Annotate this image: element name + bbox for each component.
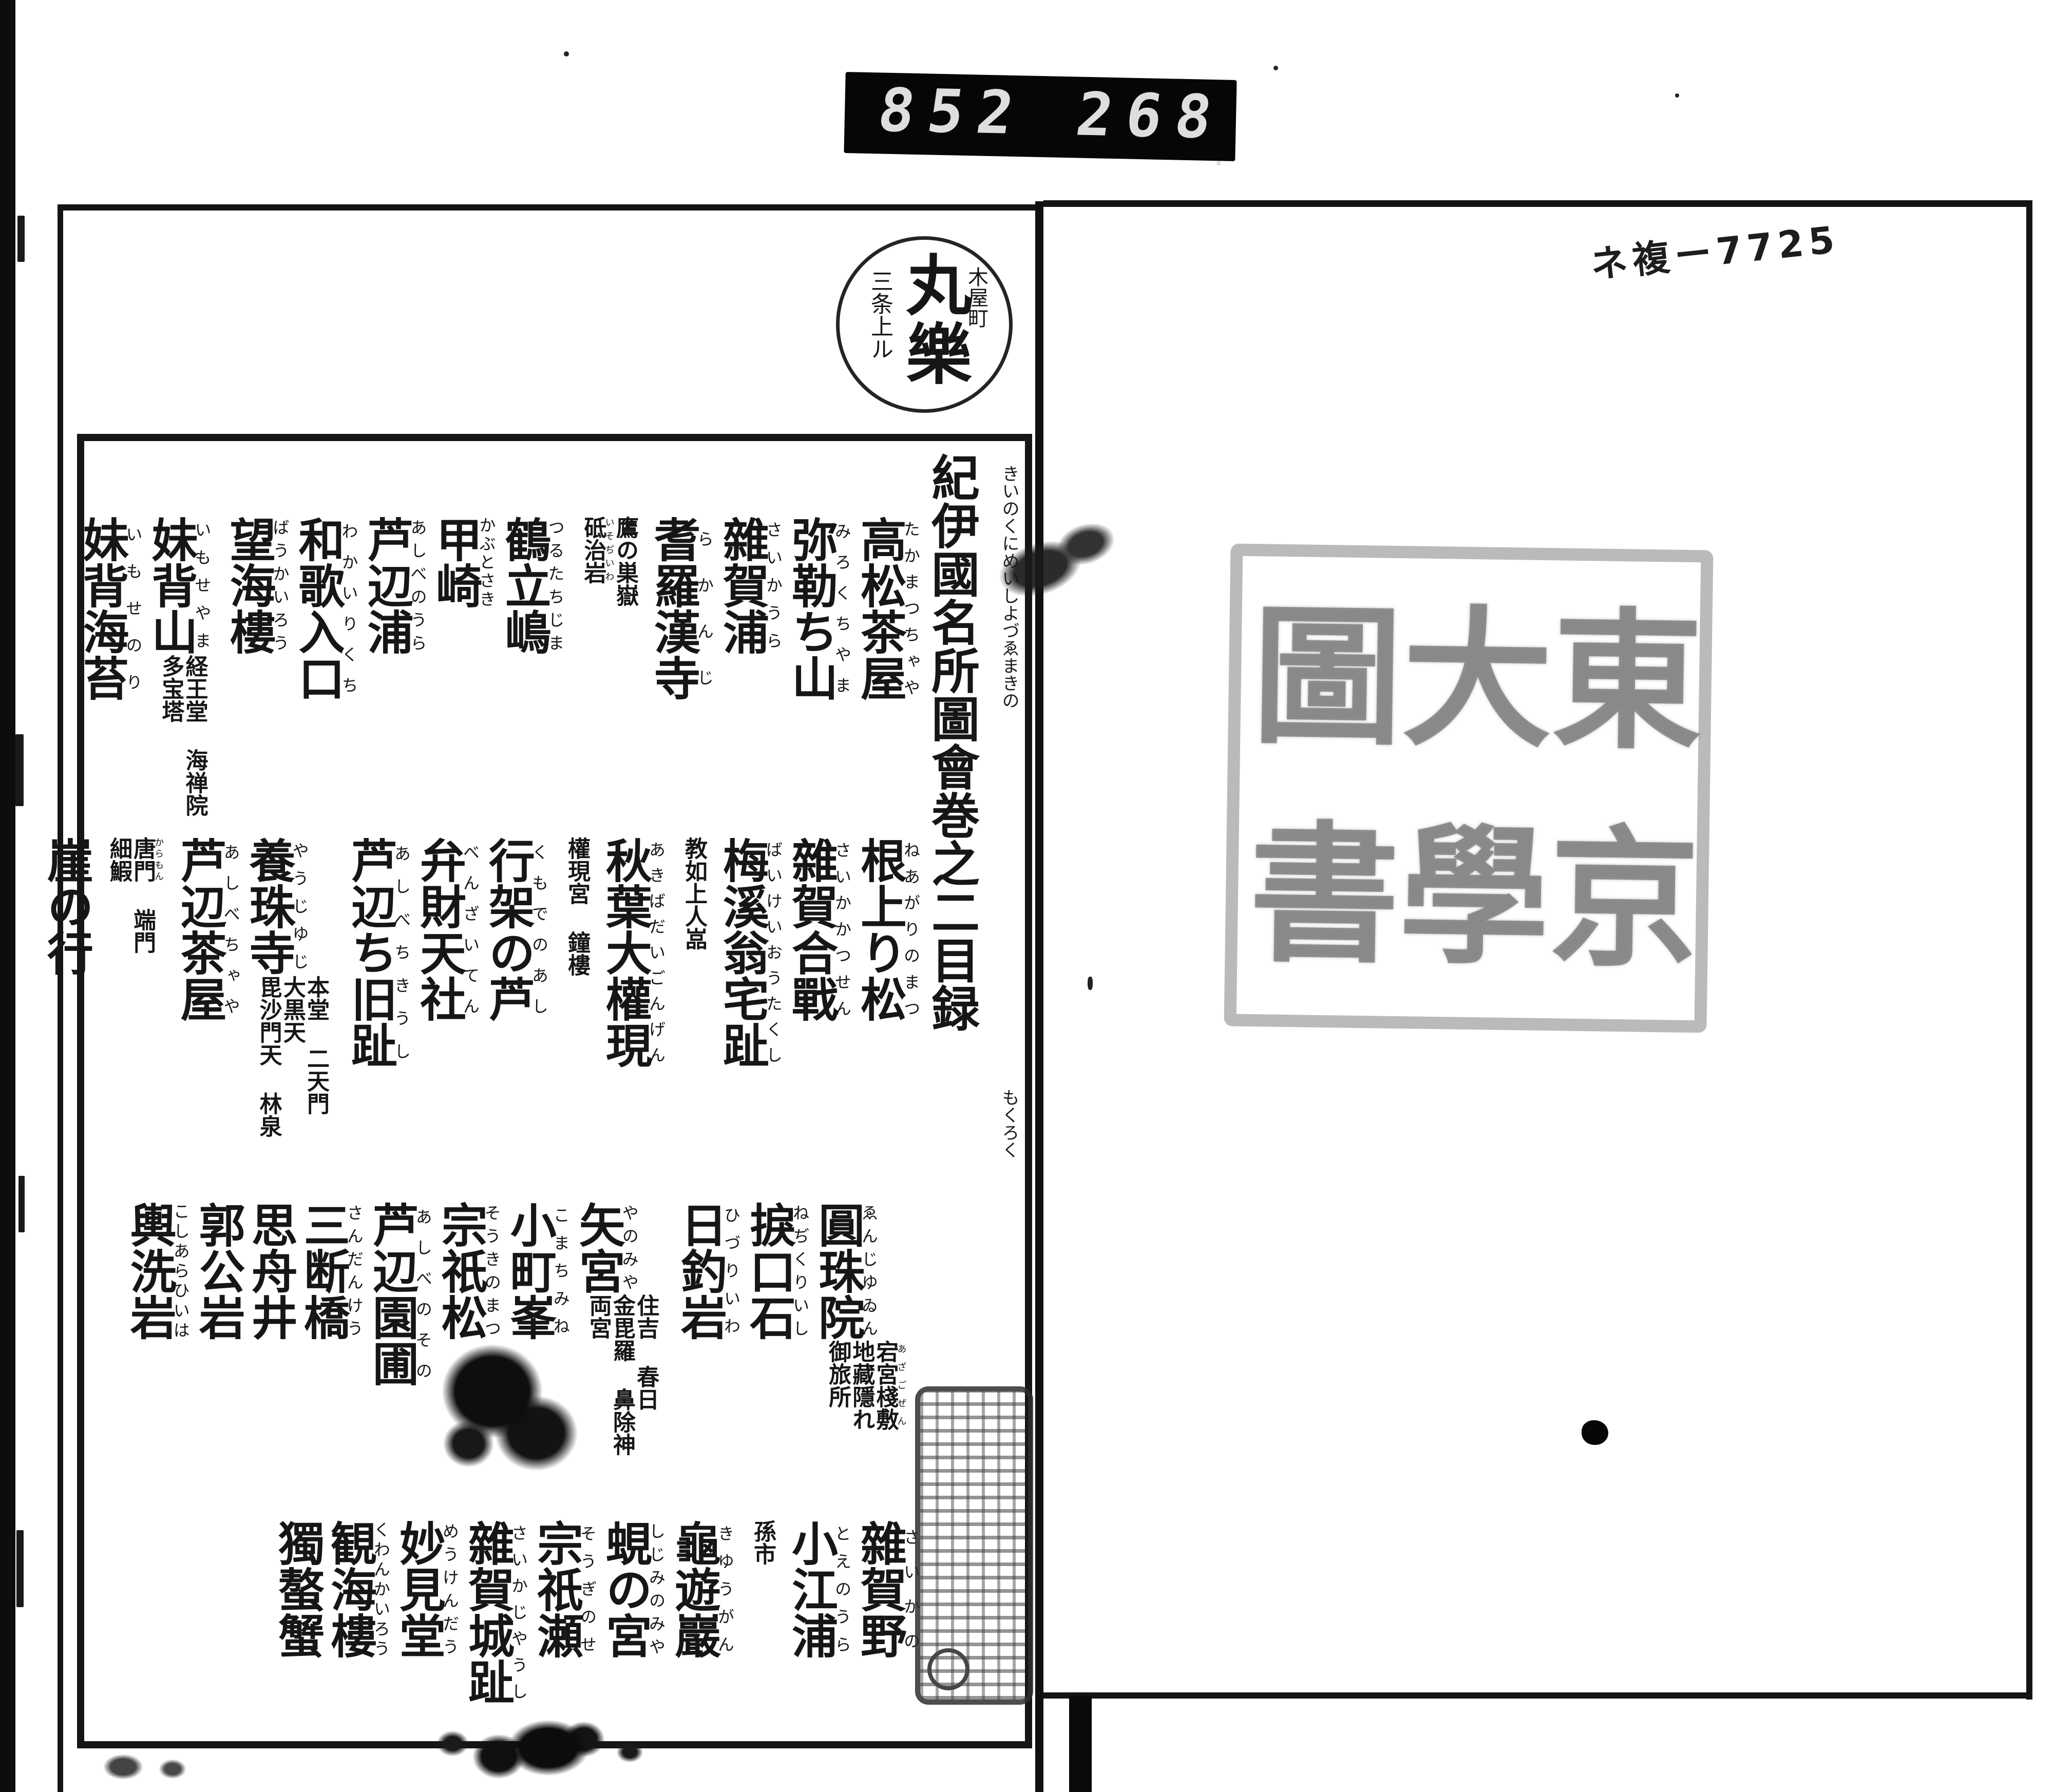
toc-entry-kana: たかまつちゃや xyxy=(901,516,921,701)
toc-sub-entry: 宕宮棧敷あざごぜん xyxy=(872,1340,899,1431)
toc-entry-kana: そうぎのせ xyxy=(578,1520,597,1658)
toc-entry-kana: さんだんけう xyxy=(345,1202,364,1340)
toc-entry-text: 捩口石ねぢくりいし xyxy=(741,1202,796,1340)
toc-entry: 行架の芦くもでのあし xyxy=(485,837,547,1155)
dust-speck xyxy=(564,51,569,56)
dust-speck xyxy=(1088,977,1093,990)
toc-entry: 捩口石ねぢくりいし xyxy=(746,1202,808,1510)
toc-entry-kana: べんざいてん xyxy=(461,837,480,1022)
ink-dot xyxy=(1582,1420,1608,1445)
dust-speck xyxy=(1273,66,1278,70)
ink-stain-bottom-left xyxy=(77,1745,231,1789)
toc-entry-text: 雜賀合戰さいかかつせん xyxy=(784,837,838,1022)
toc-entry-text: 小江浦とえのうら xyxy=(784,1520,838,1658)
toc-entry: 鶴立嶋つるたちじま xyxy=(501,516,564,824)
toc-entry: 雜賀野さいかの xyxy=(857,1520,919,1741)
toc-entry-text: 雜賀野さいかの xyxy=(852,1520,907,1658)
toc-entry: 日釣岩ひづりいわ xyxy=(677,1202,739,1510)
toc-sub-entry: 二天門 xyxy=(303,1047,329,1115)
toc-sub-entry: 住吉 xyxy=(633,1294,659,1339)
toc-entry-kana: しじみのみや xyxy=(646,1520,666,1658)
toc-entry-kana: あきばだいごんげん xyxy=(646,837,666,1068)
film-frame-counter: 852 268 . xyxy=(844,72,1237,161)
toc-entry-kana: いもせやま xyxy=(192,516,212,655)
toc-entry: 雜賀浦さいかうら xyxy=(719,516,782,824)
right-page-bottom-edge xyxy=(1043,1692,2032,1699)
edge-mark xyxy=(16,1530,24,1607)
toc-entry: 弥勒ち山みろくちやま xyxy=(788,516,850,824)
toc-entry-text: 梅溪翁宅趾ばいけいおうたくし xyxy=(715,837,769,1068)
toc-sub-entry: 春日 xyxy=(633,1365,659,1410)
toc-entry-kana: くわんかいろう xyxy=(371,1520,391,1658)
toc-entry: 望海樓ばうかいろう xyxy=(226,516,289,824)
seal-column: 圖書 xyxy=(1248,567,1404,1005)
call-number-note: ネ複ー7725 xyxy=(1588,209,1842,289)
toc-entry: 耆羅漢寺らかんじ鷹の巣嶽 砥治岩いそぢいわ xyxy=(570,516,713,824)
toc-entry-kana: こしあらひいは xyxy=(171,1202,191,1340)
toc-sub-entry: 本堂 xyxy=(303,976,329,1021)
toc-band-2: 根上り松ねあがりのまつ雜賀合戰さいかかつせん梅溪翁宅趾ばいけいおうたくし教如上人… xyxy=(87,837,919,1155)
toc-sub-entry: 教如上人嵓 xyxy=(681,837,707,950)
edge-mark xyxy=(17,216,25,262)
toc-entry-text: 圓珠院ゑんじゆゐん xyxy=(810,1202,865,1340)
toc-entry-text: 獨螯蟹 xyxy=(270,1520,325,1658)
toc-entry: 輿洗岩こしあらひいは xyxy=(126,1202,189,1510)
gutter-ink-bar xyxy=(1069,1695,1092,1792)
toc-entry-kana: ねぢくりいし xyxy=(790,1202,810,1340)
toc-entry-sub-list: 孫市 xyxy=(751,1520,774,1689)
toc-sub-entry: 経王堂 xyxy=(182,655,208,722)
toc-entry-kana: らかんじ xyxy=(695,516,714,701)
toc-title-kana-lower: もくろく xyxy=(1000,1089,1018,1158)
toc-entry-kana: かぶとさき xyxy=(477,516,497,608)
toc-entry-kana: あしべちゃや xyxy=(221,837,241,1022)
toc-entry-kana: やうじゆじ xyxy=(290,837,310,976)
toc-sub-entry: 毘沙門天 xyxy=(256,976,282,1066)
edge-mark xyxy=(15,734,24,806)
toc-sub-entry: 鼻除神 xyxy=(609,1388,635,1456)
toc-entry-text: 妙見堂めうけんだう xyxy=(391,1520,446,1658)
toc-entry: 甲崎かぶとさき xyxy=(432,516,495,824)
toc-entry-text: 輿洗岩こしあらひいは xyxy=(122,1202,177,1340)
toc-entry-text: 甲崎かぶとさき xyxy=(428,516,483,608)
toc-sub-entry: 海禅院 xyxy=(182,749,208,816)
toc-entry: 思舟井 xyxy=(248,1202,294,1510)
toc-sub-entry: 鐘樓 xyxy=(564,931,590,976)
toc-entry: 三断橋さんだんけう xyxy=(300,1202,363,1510)
toc-sub-entry: 細鰕 xyxy=(106,837,132,882)
toc-entry-text: 秋葉大權現あきばだいごんげん xyxy=(598,837,652,1068)
bookseller-stamp-address-left: 三条上ル xyxy=(868,270,891,360)
toc-entry: 妹背山いもせやま経王堂 海禅院 多宝塔 xyxy=(147,516,219,824)
toc-sub-entry: 多宝塔 xyxy=(158,655,184,722)
toc-entry-sub-list: 住吉 春日 金毘羅 鼻除神 両宮 xyxy=(586,1294,658,1463)
toc-entry: 圓珠院ゑんじゆゐん宕宮棧敷あざごぜん 地藏隱れ 御旅所 xyxy=(814,1202,919,1510)
toc-entry-text: 蜆の宮しじみのみや xyxy=(598,1520,652,1658)
toc-entry-text: 弁財天社べんざいてん xyxy=(412,837,466,1022)
toc-entry: 獨螯蟹 xyxy=(274,1520,320,1741)
bookseller-stamp-address-right: 木屋町 xyxy=(966,266,986,328)
toc-entry-text: 芦辺ち旧趾あしべちきうし xyxy=(343,837,397,1068)
ink-smudge-center xyxy=(421,1314,591,1489)
scan-edge-strip xyxy=(0,0,15,1792)
toc-sub-entry: 御旅所 xyxy=(825,1340,851,1408)
toc-entry: 和歌入口わかいりくち xyxy=(295,516,357,824)
right-page-right-edge xyxy=(2026,200,2032,1700)
toc-entry: 秋葉大權現あきばだいごんげん權現宮 鐘樓 xyxy=(554,837,664,1155)
toc-entry-text: 行架の芦くもでのあし xyxy=(481,837,535,1022)
toc-entry-sub-list: 本堂 二天門 大黒天 毘沙門天 林泉 xyxy=(256,976,328,1145)
toc-entry-sub-list: 教如上人嵓 xyxy=(682,837,706,1006)
toc-entry: 妹背海苔いもせのり xyxy=(79,516,141,824)
ink-stain-bottom xyxy=(329,1705,683,1791)
toc-entry-kana: わかいりくち xyxy=(339,516,359,701)
seal-character: 學 xyxy=(1398,821,1550,973)
bookseller-stamp-mark: 丸樂 xyxy=(900,251,966,389)
toc-entry: 高松茶屋たかまつちゃや xyxy=(857,516,919,824)
left-page-top-edge xyxy=(58,204,1043,211)
toc-entry-kana: ゑんじゆゐん xyxy=(859,1202,879,1340)
scanned-book-spread: 852 268 . 丸樂 木屋町 三条上ル 紀伊國名所圖會巻之二目録 きいのくに… xyxy=(0,0,2054,1792)
toc-entry-kana: つるたちじま xyxy=(546,516,565,655)
counter-digits-right: 268 xyxy=(1073,85,1229,148)
seal-character: 京 xyxy=(1548,823,1700,975)
toc-entry-kana: ばいけいおうたくし xyxy=(764,837,783,1068)
toc-sub-entry: 金毘羅 xyxy=(609,1294,635,1362)
toc-entry-kana: きゆうがん xyxy=(715,1520,735,1658)
seal-column: 東京 xyxy=(1548,571,1704,1009)
toc-entry-text: 和歌入口わかいりくち xyxy=(291,516,345,701)
toc-entry-text: 高松茶屋たかまつちゃや xyxy=(852,516,907,701)
toc-entry-text: 芦辺園圃あしべのその xyxy=(365,1202,419,1386)
toc-entry-sub-list: 宕宮棧敷あざごぜん 地藏隱れ 御旅所 xyxy=(826,1340,906,1510)
toc-entry-text: 養珠寺やうじゆじ xyxy=(241,837,296,976)
seal-column: 大學 xyxy=(1398,569,1554,1007)
toc-entry: 郭公岩 xyxy=(195,1202,241,1510)
toc-entry-sub-list: 鷹の巣嶽 砥治岩いそぢいわ xyxy=(581,516,637,685)
toc-entry-kana: さいかうら xyxy=(764,516,783,655)
seal-character: 圖 xyxy=(1251,601,1403,753)
toc-entry-text: 根上り松ねあがりのまつ xyxy=(852,837,907,1022)
seal-ring-glyph xyxy=(927,1648,969,1690)
edge-mark xyxy=(18,1176,25,1232)
toc-entry-kana: さいかかつせん xyxy=(832,837,852,1022)
toc-entry-text: 芦辺浦あしべのうら xyxy=(359,516,414,655)
toc-entry-sub-list: 權現宮 鐘樓 xyxy=(565,837,588,1006)
toc-entry-text: 崖の行 xyxy=(39,837,93,976)
toc-entry-kana: みろくちやま xyxy=(832,516,852,701)
toc-entry: 芦辺茶屋あしべちゃや唐門からもん 端門 細鰕 xyxy=(96,837,239,1155)
toc-entry: 梅溪翁宅趾ばいけいおうたくし教如上人嵓 xyxy=(671,837,782,1155)
toc-sub-entry: 端門 xyxy=(129,908,156,954)
counter-decimal-point: . xyxy=(1209,137,1229,174)
toc-entry-text: 龜遊巖きゆうがん xyxy=(667,1520,721,1658)
toc-entry-kana: ねあがりのまつ xyxy=(901,837,921,1022)
toc-entry-text: 雜賀浦さいかうら xyxy=(715,516,769,655)
toc-entry-text: 望海樓ばうかいろう xyxy=(222,516,276,655)
toc-entry: 雜賀合戰さいかかつせん xyxy=(788,837,850,1155)
counter-digits-left: 852 xyxy=(874,81,1031,144)
toc-entry-sub-list: 唐門からもん 端門 細鰕 xyxy=(107,837,163,1006)
toc-sub-entry: 林泉 xyxy=(256,1092,282,1137)
toc-entry-text: 三断橋さんだんけう xyxy=(296,1202,350,1340)
toc-entry: 弁財天社べんざいてん xyxy=(416,837,479,1155)
toc-entry-kana: ひづりいわ xyxy=(721,1202,741,1340)
toc-entry-kana: ばうかいろう xyxy=(271,516,290,655)
toc-entry-kana: やのみや xyxy=(620,1202,639,1294)
toc-entry-text: 妹背海苔いもせのり xyxy=(74,516,129,701)
toc-entry-sub-list: 経王堂 海禅院 多宝塔 xyxy=(159,655,206,824)
toc-entry-kana: とえのうら xyxy=(832,1520,852,1658)
toc-entry-text: 耆羅漢寺らかんじ xyxy=(646,516,700,701)
toc-entry: 芦辺浦あしべのうら xyxy=(364,516,426,824)
toc-sub-entry: 砥治岩いそぢいわ xyxy=(580,516,606,584)
toc-entry: 養珠寺やうじゆじ本堂 二天門 大黒天 毘沙門天 林泉 xyxy=(245,837,341,1155)
toc-entry-text: 矢宮やのみや xyxy=(571,1202,625,1294)
toc-entry-text: 思舟井 xyxy=(243,1202,298,1340)
toc-entry: 芦辺ち旧趾あしべちきうし xyxy=(347,837,410,1155)
toc-entry-kana: いもせのり xyxy=(123,516,143,701)
collection-seal-small xyxy=(915,1386,1033,1705)
toc-entry-text: 観海樓くわんかいろう xyxy=(322,1520,377,1658)
toc-sub-entry: 大黒天 xyxy=(279,976,306,1043)
toc-entry-text: 郭公岩 xyxy=(191,1202,245,1340)
toc-entry-text: 芦辺茶屋あしべちゃや xyxy=(173,837,227,1022)
page-gutter xyxy=(1035,201,1043,1792)
toc-band-1: 高松茶屋たかまつちゃや弥勒ち山みろくちやま雜賀浦さいかうら耆羅漢寺らかんじ鷹の巣… xyxy=(87,516,919,824)
toc-sub-entry: 地藏隱れ xyxy=(848,1340,874,1431)
toc-entry: 小江浦とえのうら孫市 xyxy=(739,1520,850,1741)
toc-entry-kana: あしべちきうし xyxy=(392,837,411,1068)
toc-entry: 崖の行 xyxy=(43,837,89,1155)
toc-sub-entry: 唐門からもん xyxy=(129,837,156,882)
toc-entry-text: 弥勒ち山みろくちやま xyxy=(784,516,838,701)
toc-entry-kana: めうけんだう xyxy=(440,1520,460,1658)
seal-character: 大 xyxy=(1401,603,1553,755)
bookseller-stamp: 丸樂 木屋町 三条上ル xyxy=(836,236,1013,413)
toc-sub-entry: 鷹の巣嶽 xyxy=(612,516,638,606)
toc-entry-text: 日釣岩ひづりいわ xyxy=(673,1202,727,1340)
toc-entry-text: 鶴立嶋つるたちじま xyxy=(497,516,551,655)
toc-entry-kana: あしべのうら xyxy=(408,516,428,655)
toc-entry-text: 宗祇瀬そうぎのせ xyxy=(529,1520,583,1658)
seal-character: 書 xyxy=(1248,819,1400,971)
right-page-top-edge xyxy=(1043,200,2030,207)
toc-entry-text: 妹背山いもせやま xyxy=(143,516,198,655)
toc-sub-entry: 權現宮 xyxy=(564,837,590,905)
toc-entry: 根上り松ねあがりのまつ xyxy=(857,837,919,1155)
library-seal-large: 東京大學圖書 xyxy=(1224,543,1713,1033)
toc-entry-text: 雜賀城趾さいかじやうし xyxy=(460,1520,515,1705)
dust-speck xyxy=(1675,93,1679,98)
toc-entry-kana: くもでのあし xyxy=(529,837,549,1022)
toc-entry-kana: さいかじやうし xyxy=(509,1520,528,1705)
toc-sub-entry: 孫市 xyxy=(750,1520,776,1565)
seal-character: 東 xyxy=(1551,605,1703,757)
